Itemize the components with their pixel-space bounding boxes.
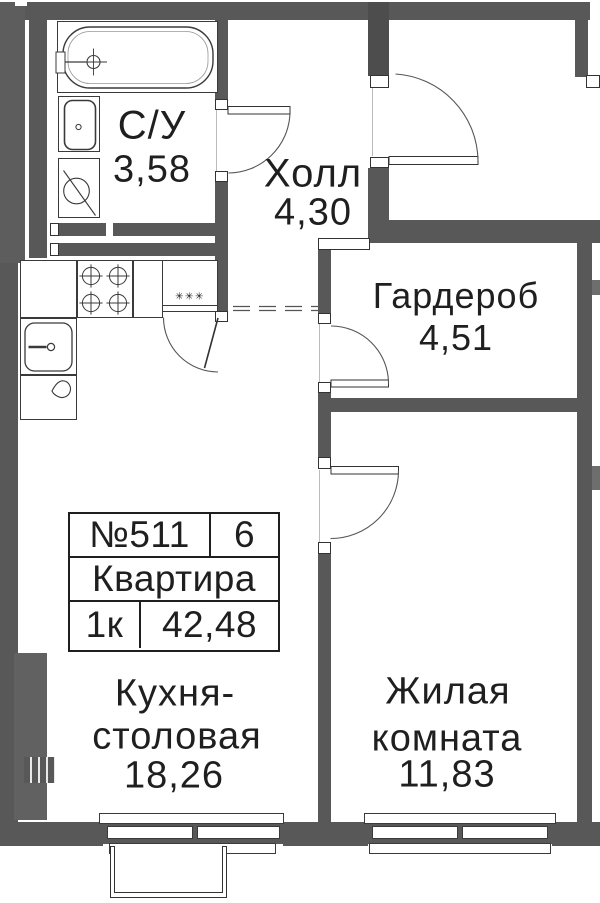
bathroom-door-leaf: [228, 107, 290, 115]
stove-burners-icon: [79, 264, 129, 314]
kitchen-name-line2-label: столовая: [92, 716, 261, 759]
entrance-door-arc: [396, 74, 479, 161]
lineart-overlay: [0, 0, 600, 903]
rooms-count-cell: 1к: [70, 602, 141, 648]
floor-plan: С/У 3,58 Холл 4,30 Гардероб 4,51 Кухня- …: [0, 0, 600, 903]
wardrobe-area-label: 4,51: [419, 317, 493, 359]
living-area-label: 11,83: [398, 754, 495, 797]
living-name-line1-label: Жилая: [385, 671, 510, 714]
bathtub-inner-rim: [63, 27, 213, 88]
washer-slash-icon: [64, 171, 96, 216]
total-area-cell: 42,48: [141, 602, 278, 648]
kitchen-name-line1-label: Кухня-: [115, 673, 235, 716]
wardrobe-name-label: Гардероб: [373, 275, 539, 317]
hall-area-label: 4,30: [274, 192, 352, 235]
wardrobe-door-leaf: [331, 380, 389, 387]
apartment-type-cell: Квартира: [70, 558, 278, 600]
living-door-arc: [331, 471, 399, 539]
bathroom-area-label: 3,58: [113, 149, 191, 192]
kitchen-door-leaf: [205, 318, 219, 368]
kitchen-door-arc: [164, 318, 219, 373]
washer-drum-icon: [64, 178, 90, 204]
boiler-drop-icon: [52, 381, 71, 398]
sink-drain-dot: [76, 124, 81, 129]
kitchen-sink-faucet-dot: [47, 343, 54, 350]
bathroom-name-label: С/У: [118, 104, 186, 149]
hall-name-label: Холл: [264, 152, 362, 197]
wardrobe-door-arc: [331, 326, 389, 384]
apartment-number-cell: №511: [70, 514, 211, 556]
bathtub-tap-icon: [56, 52, 65, 73]
living-door-leaf: [331, 467, 399, 475]
apartment-info-table: №511 6 Квартира 1к 42,48: [68, 512, 280, 652]
entrance-door-leaf: [389, 157, 478, 165]
floor-number-cell: 6: [211, 514, 278, 556]
kitchen-area-label: 18,26: [124, 755, 224, 798]
fridge-snowflakes-icon: ✳✳✳: [175, 292, 205, 303]
bathtub-drain-cross: [80, 49, 107, 76]
